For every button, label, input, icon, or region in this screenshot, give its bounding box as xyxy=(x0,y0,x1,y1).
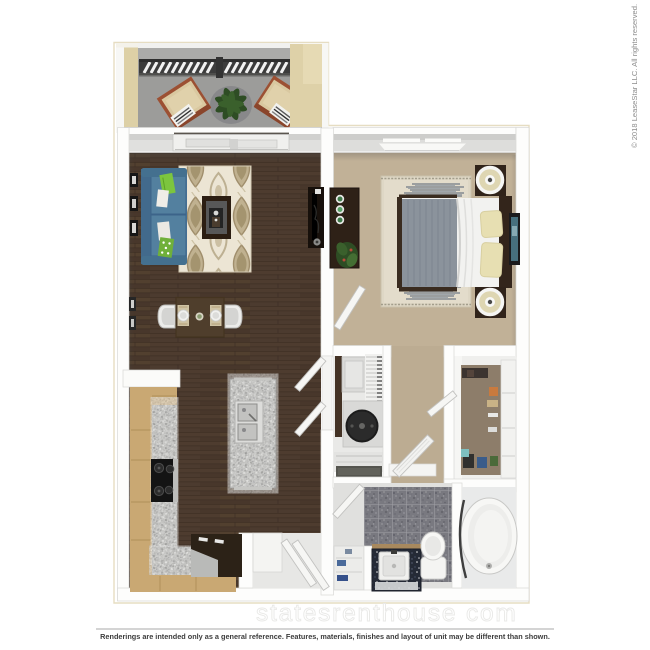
svg-text:© 2018 LeaseStar LLC. All righ: © 2018 LeaseStar LLC. All rights reserve… xyxy=(630,4,639,148)
svg-text:Renderings are intended only a: Renderings are intended only as a genera… xyxy=(100,632,550,641)
svg-text:statesrenthouse com: statesrenthouse com xyxy=(256,600,518,627)
